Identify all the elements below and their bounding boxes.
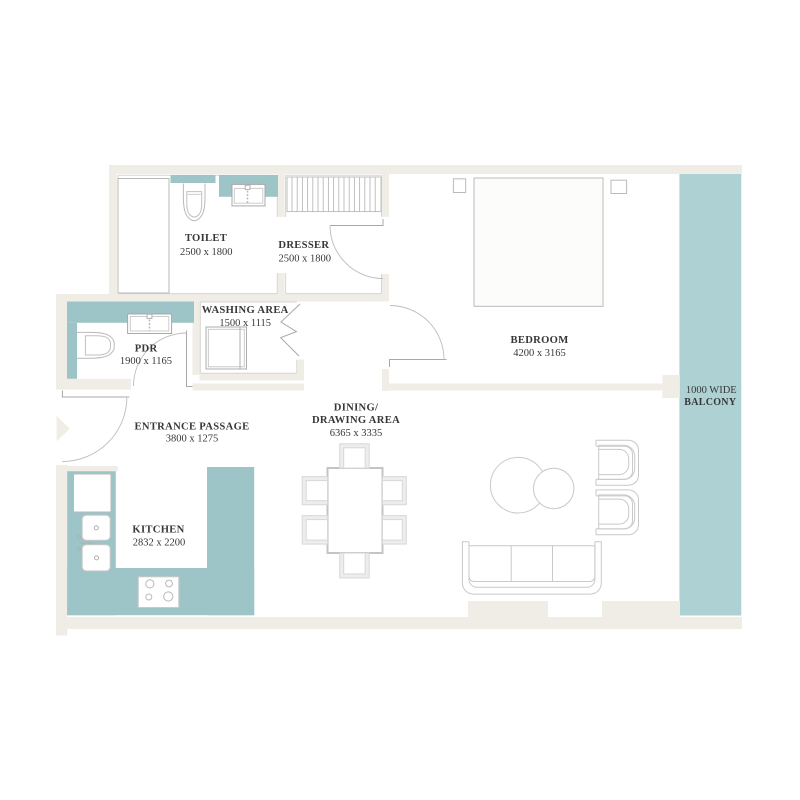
svg-text:PDR: PDR — [135, 344, 158, 355]
svg-text:TOILET: TOILET — [185, 233, 227, 244]
svg-text:ENTRANCE PASSAGE: ENTRANCE PASSAGE — [135, 422, 250, 433]
svg-text:2500 x 1800: 2500 x 1800 — [180, 247, 233, 258]
svg-text:6365 x 3335: 6365 x 3335 — [330, 428, 383, 439]
svg-text:DRESSER: DRESSER — [278, 240, 329, 251]
svg-text:3800 x 1275: 3800 x 1275 — [166, 434, 219, 445]
svg-text:DINING/: DINING/ — [334, 403, 379, 414]
svg-text:BEDROOM: BEDROOM — [510, 335, 568, 346]
svg-text:1000 WIDE: 1000 WIDE — [686, 385, 737, 396]
svg-text:KITCHEN: KITCHEN — [132, 525, 184, 536]
svg-text:2832 x 2200: 2832 x 2200 — [133, 538, 186, 549]
svg-text:DRAWING AREA: DRAWING AREA — [312, 415, 400, 426]
svg-text:2500 x 1800: 2500 x 1800 — [279, 253, 332, 264]
svg-text:WASHING AREA: WASHING AREA — [202, 305, 289, 316]
svg-text:1900 x 1165: 1900 x 1165 — [120, 356, 172, 367]
svg-text:BALCONY: BALCONY — [684, 397, 737, 408]
svg-text:1500 x 1115: 1500 x 1115 — [219, 318, 271, 329]
svg-text:4200 x 3165: 4200 x 3165 — [513, 348, 566, 359]
